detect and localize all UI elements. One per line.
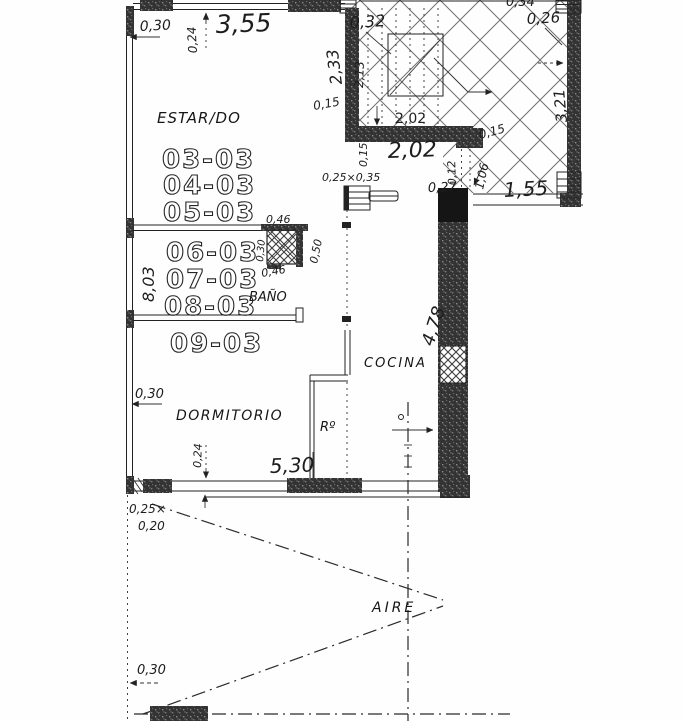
- room-label-air: AIRE: [371, 600, 416, 616]
- partition-end-bracket: [296, 308, 303, 322]
- dim-030-bottom: 0,30: [137, 663, 166, 678]
- dim-034-partial: 0,34: [506, 0, 535, 10]
- dim-803: 8,03: [139, 266, 158, 302]
- floor-plan-svg: 0,30 0,24 3,55 ESTAR/DO 2,33 0,15 0,32 2…: [0, 0, 683, 721]
- dim-027: 0,27: [428, 180, 458, 196]
- dim-321: 3,21: [550, 88, 571, 123]
- unit-number: 04-03: [163, 171, 256, 201]
- room-label-closet: Rº: [320, 420, 335, 435]
- dim-030-duct: 0,30: [255, 239, 268, 262]
- room-label-bath: BAÑO: [249, 289, 287, 305]
- bottom-wall: [128, 475, 470, 498]
- dim-046-top: 0,46: [266, 213, 291, 226]
- dim-233: 2,33: [323, 48, 346, 86]
- dim-202-stair: 2,02: [395, 111, 426, 127]
- room-label-living: ESTAR/DO: [157, 109, 241, 127]
- kitchen-vent-fixture: [344, 186, 398, 210]
- dim-046-bottom: 0,46: [260, 263, 286, 280]
- dim-024-top: 0,24: [185, 26, 200, 53]
- floor-plan-canvas: 0,30 0,24 3,55 ESTAR/DO 2,33 0,15 0,32 2…: [0, 0, 683, 721]
- room-label-kitchen: COCINA: [364, 356, 427, 371]
- unit-number: 08-03: [164, 292, 257, 322]
- unit-number: 07-03: [166, 265, 259, 295]
- wall-block-top-left: [140, 0, 173, 11]
- dim-202-hand: 2,02: [387, 137, 437, 164]
- dim-030-top: 0,30: [139, 17, 171, 35]
- dim-032: 0,32: [349, 11, 386, 32]
- dim-024-bottom: 0,24: [191, 443, 205, 468]
- dim-213: 2,13: [352, 61, 367, 88]
- dim-015-left: 0,15: [312, 95, 341, 113]
- unit-number: 05-03: [163, 198, 256, 228]
- dim-530: 5,30: [269, 452, 314, 478]
- unit-number: 09-03: [170, 329, 263, 359]
- dim-026: 0,26: [526, 8, 560, 28]
- dim-050-duct: 0,50: [307, 238, 325, 265]
- dim-030-dorm: 0,30: [135, 387, 164, 402]
- dim-015-stairwall: 0,15: [357, 143, 370, 168]
- kitchen-window-hatch: [440, 346, 466, 383]
- kitchen-east-wall: [438, 188, 468, 492]
- axis-marker: [399, 415, 404, 420]
- duct-air-size-a: 0,25×: [129, 502, 166, 516]
- duct-bath-size: 0,25×0,35: [322, 171, 380, 184]
- right-outer-wall: [567, 0, 581, 200]
- vent-duct-pillar: [261, 224, 308, 269]
- wall-block-top-mid: [288, 0, 341, 12]
- room-label-bedroom: DORMITORIO: [176, 408, 283, 424]
- unit-number: 06-03: [166, 238, 259, 268]
- dim-355: 3,55: [215, 8, 272, 39]
- duct-air-size-b: 0,20: [138, 519, 165, 533]
- dim-155: 1,55: [503, 176, 549, 202]
- bottom-wall-stub: [150, 706, 208, 721]
